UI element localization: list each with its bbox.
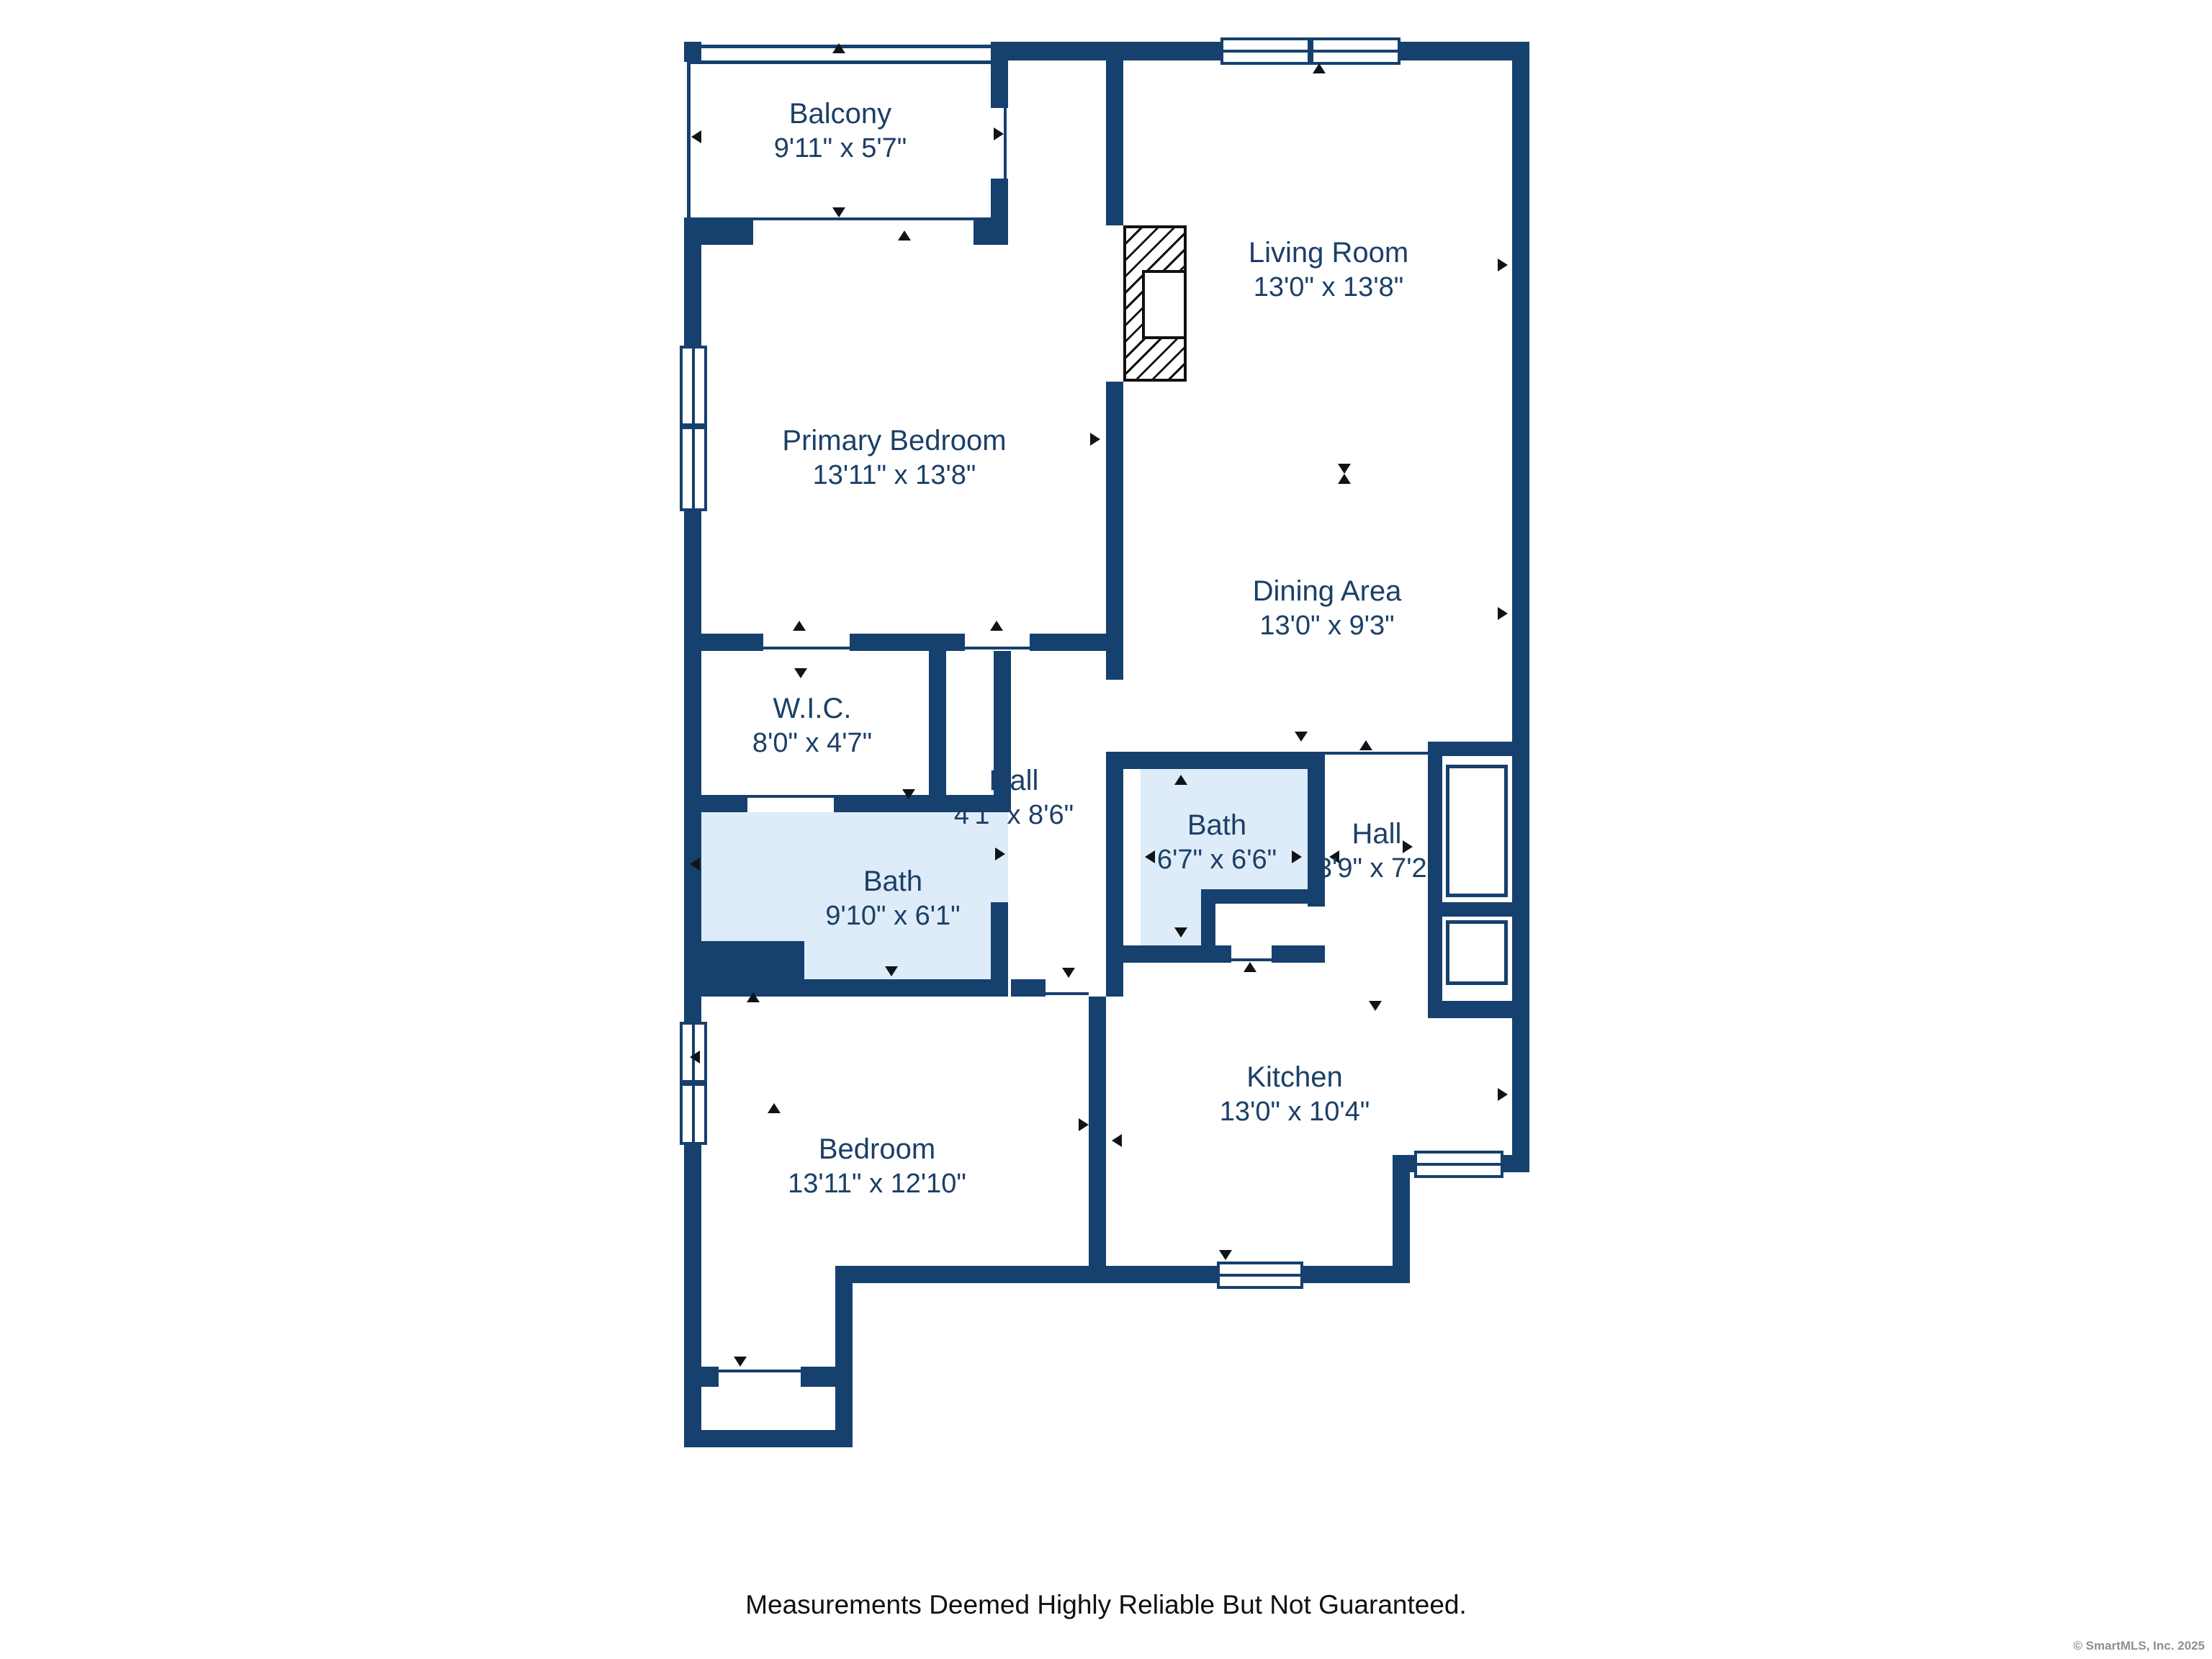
- door-arrow-icon: [902, 789, 915, 799]
- door-arrow-icon: [793, 621, 806, 631]
- door-arrow-icon: [1244, 962, 1256, 972]
- door-arrow-icon: [1369, 1001, 1382, 1011]
- wall-segment: [991, 902, 1008, 997]
- door-arrow-icon: [990, 621, 1003, 631]
- wall-segment: [1123, 945, 1231, 963]
- door-arrow-icon: [1145, 850, 1155, 863]
- balcony-railing: [687, 60, 994, 64]
- wall-segment: [1106, 634, 1123, 680]
- room-dimensions: 13'11" x 13'8": [813, 460, 976, 490]
- wall-segment: [1201, 889, 1308, 904]
- room-name: Dining Area: [1253, 575, 1402, 607]
- wall-segment: [1428, 742, 1529, 756]
- door-arrow-icon: [690, 1051, 700, 1064]
- door-arrow-icon: [768, 1103, 781, 1113]
- room-dimensions: 13'0" x 13'8": [1254, 272, 1403, 302]
- door-opening-line: [965, 647, 1030, 649]
- room-label-kitchen: Kitchen 13'0" x 10'4": [1220, 1061, 1370, 1128]
- door-arrow-icon: [1498, 1088, 1508, 1101]
- door-opening-line: [747, 795, 834, 798]
- door-arrow-icon: [1112, 1134, 1122, 1147]
- door-arrow-icon: [1219, 1250, 1232, 1260]
- wall-segment: [701, 941, 804, 997]
- window-marker: [680, 1083, 707, 1145]
- room-label-bath-hall: Bath 6'7" x 6'6": [1157, 809, 1277, 876]
- door-arrow-icon: [1498, 258, 1508, 271]
- room-dimensions: 8'0" x 4'7": [752, 728, 872, 758]
- door-arrow-icon: [832, 207, 845, 217]
- wall-segment: [1428, 1001, 1529, 1018]
- room-name: Bedroom: [819, 1133, 935, 1165]
- wall-segment: [835, 1266, 853, 1447]
- closet: [1446, 765, 1508, 897]
- door-arrow-icon: [691, 130, 701, 143]
- firebox-icon: [1142, 270, 1187, 339]
- door-arrow-icon: [1174, 927, 1187, 938]
- room-name: Bath: [863, 866, 922, 897]
- window-marker: [1217, 1262, 1303, 1289]
- wall-segment: [1393, 1155, 1410, 1283]
- door-arrow-icon: [995, 848, 1005, 860]
- wall-segment: [684, 1430, 853, 1447]
- room-label-hall-upper: Hall 4'1" x 8'6": [954, 764, 1074, 832]
- window-marker: [680, 346, 707, 426]
- room-label-hall-right: Hall 3'9" x 7'2": [1317, 817, 1437, 885]
- room-label-wic: W.I.C. 8'0" x 4'7": [752, 692, 872, 760]
- door-arrow-icon: [1174, 775, 1187, 785]
- room-name: Living Room: [1249, 237, 1408, 269]
- wall-segment: [1272, 945, 1325, 963]
- wall-segment: [835, 1266, 1410, 1283]
- door-arrow-icon: [747, 992, 760, 1002]
- room-dimensions: 6'7" x 6'6": [1157, 845, 1277, 875]
- wall-segment: [1106, 59, 1123, 225]
- fireplace-icon: [1123, 225, 1187, 382]
- room-label-bath-primary: Bath 9'10" x 6'1": [825, 865, 960, 932]
- door-arrow-icon: [832, 43, 845, 53]
- window-marker: [1310, 37, 1401, 65]
- hourglass-marker-icon: [1338, 464, 1351, 474]
- door-arrow-icon: [690, 858, 700, 871]
- room-name: Hall: [1352, 818, 1402, 850]
- wall-segment: [850, 634, 965, 651]
- wall-segment: [804, 979, 1008, 997]
- wall-segment: [1106, 752, 1123, 997]
- wall-segment: [1106, 382, 1123, 634]
- room-dimensions: 9'11" x 5'7": [774, 133, 907, 163]
- wall-segment: [684, 634, 763, 651]
- closet: [1446, 920, 1508, 985]
- room-label-dining-area: Dining Area 13'0" x 9'3": [1253, 575, 1402, 642]
- wall-segment: [974, 217, 1008, 245]
- room-dimensions: 13'11" x 12'10": [788, 1169, 966, 1199]
- room-label-living-room: Living Room 13'0" x 13'8": [1249, 236, 1408, 304]
- wall-segment: [684, 217, 753, 245]
- room-dimensions: 13'0" x 10'4": [1220, 1097, 1370, 1127]
- disclaimer-text: Measurements Deemed Highly Reliable But …: [0, 1590, 2212, 1620]
- room-dimensions: 13'0" x 9'3": [1259, 611, 1394, 641]
- door-opening-line: [763, 647, 850, 649]
- door-arrow-icon: [794, 668, 807, 678]
- room-name: Primary Bedroom: [782, 425, 1006, 457]
- room-dimensions: 9'10" x 6'1": [825, 901, 960, 931]
- room-label-primary-bedroom: Primary Bedroom 13'11" x 13'8": [782, 424, 1006, 492]
- door-arrow-icon: [1313, 63, 1326, 73]
- room-dimensions: 4'1" x 8'6": [954, 800, 1074, 830]
- wall-segment: [991, 60, 1008, 108]
- room-label-balcony: Balcony 9'11" x 5'7": [774, 97, 907, 165]
- balcony-railing: [687, 45, 691, 220]
- door-opening-line: [1321, 752, 1428, 755]
- door-arrow-icon: [994, 127, 1004, 140]
- room-dimensions: 3'9" x 7'2": [1317, 853, 1437, 884]
- wall-segment: [684, 42, 701, 62]
- door-arrow-icon: [885, 966, 898, 976]
- room-name: Hall: [989, 765, 1039, 796]
- door-arrow-icon: [1359, 740, 1372, 750]
- door-arrow-icon: [1090, 433, 1100, 446]
- window-marker: [680, 426, 707, 511]
- door-arrow-icon: [1295, 732, 1308, 742]
- bath-hall-floor-lower: [1141, 889, 1201, 945]
- copyright-watermark: © SmartMLS, Inc. 2025: [2073, 1639, 2205, 1653]
- wall-segment: [929, 651, 946, 795]
- room-label-bedroom: Bedroom 13'11" x 12'10": [788, 1133, 966, 1200]
- wall-segment: [1123, 752, 1325, 769]
- wall-segment: [684, 795, 747, 812]
- room-name: Kitchen: [1246, 1061, 1342, 1093]
- room-name: Balcony: [789, 98, 891, 130]
- window-marker: [1220, 37, 1310, 65]
- sliding-door-line: [753, 217, 974, 220]
- door-arrow-icon: [1498, 607, 1508, 620]
- hourglass-marker-icon: [1338, 474, 1351, 484]
- wall-segment: [1442, 902, 1512, 917]
- door-arrow-icon: [1062, 968, 1075, 978]
- window-marker: [1414, 1151, 1503, 1178]
- door-opening-line: [1231, 958, 1272, 961]
- wall-segment: [801, 1367, 835, 1387]
- floor-plan: Balcony 9'11" x 5'7" Living Room 13'0" x…: [0, 0, 2212, 1659]
- wall-segment: [684, 1367, 719, 1387]
- door-arrow-icon: [1079, 1118, 1089, 1131]
- door-arrow-icon: [734, 1357, 747, 1367]
- door-opening-line: [1004, 108, 1007, 179]
- room-name: Bath: [1187, 809, 1246, 841]
- door-opening-line: [719, 1370, 801, 1372]
- door-opening-line: [1046, 992, 1089, 995]
- room-name: W.I.C.: [773, 693, 852, 724]
- wall-segment: [1089, 997, 1106, 1283]
- door-arrow-icon: [1292, 850, 1302, 863]
- wall-segment: [1011, 979, 1046, 997]
- door-arrow-icon: [898, 230, 911, 240]
